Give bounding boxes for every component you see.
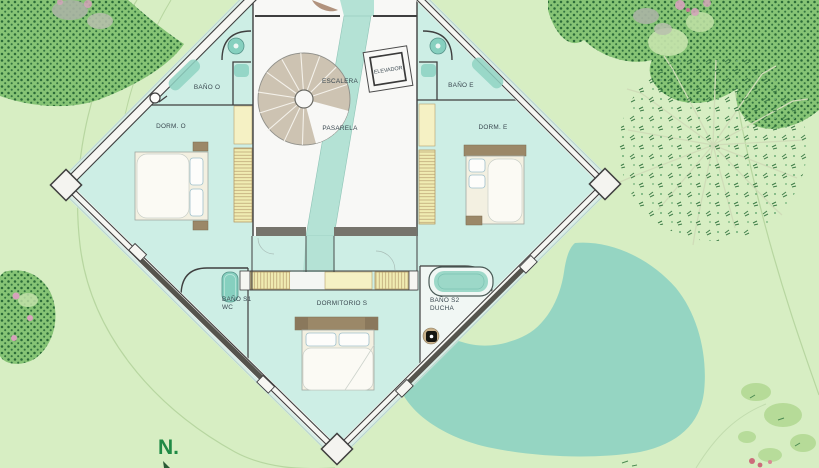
bathtub-s2 <box>429 267 493 296</box>
headboard <box>464 145 526 156</box>
label-bano-s1: BAÑO S1 <box>222 294 252 303</box>
pillow <box>306 333 336 346</box>
label-dorm-e: DORM. E <box>478 124 507 131</box>
label-bano-s2-sub: DUCHA <box>430 305 454 312</box>
door-pivot <box>150 93 160 103</box>
floorplan-page: ELEVADOR <box>0 0 819 468</box>
wall-bar <box>256 227 306 236</box>
blossom <box>84 0 92 8</box>
elevator: ELEVADOR <box>363 46 413 92</box>
bed-dorm-e <box>464 145 526 225</box>
shower-bano-e <box>430 38 446 54</box>
pillow <box>190 189 203 216</box>
blossom <box>691 8 699 16</box>
rock-cluster <box>87 13 113 29</box>
site-plan-svg: ELEVADOR <box>0 0 819 468</box>
rock-cluster <box>633 8 659 24</box>
label-bano-s2: BAÑO S2 <box>430 295 460 304</box>
nightstand <box>193 221 208 230</box>
label-escalera: ESCALERA <box>322 78 359 85</box>
nightstand <box>295 317 308 330</box>
label-bano-s1-sub: WC <box>222 304 233 311</box>
nightstand <box>365 317 378 330</box>
wall-bar <box>334 227 417 236</box>
blossom <box>749 458 755 464</box>
north-label: N. <box>158 436 179 459</box>
pillow <box>190 158 203 185</box>
blossom <box>11 335 17 341</box>
blossom <box>13 293 20 300</box>
pillow <box>339 333 369 346</box>
blossom <box>686 8 690 12</box>
rock-cluster <box>654 23 672 35</box>
shower-bano-o <box>228 38 244 54</box>
blossom <box>675 0 685 10</box>
bed-dorm-o <box>135 142 208 230</box>
label-bano-o: BAÑO O <box>194 82 220 91</box>
blossom <box>768 460 772 464</box>
nightstand <box>466 216 482 225</box>
wall-pier <box>409 271 418 290</box>
stair-center-column <box>295 90 313 108</box>
blossom <box>27 315 33 321</box>
label-dorm-o: DORM. O <box>156 123 186 130</box>
bed-dormitorio-s <box>295 317 378 390</box>
label-pasarela: PASARELA <box>322 125 358 132</box>
label-bano-e: BAÑO E <box>448 80 474 89</box>
toilet-s2 <box>423 328 439 344</box>
blossom <box>758 463 763 468</box>
pillow <box>469 175 485 188</box>
nightstand <box>193 142 208 151</box>
pillow <box>469 159 485 172</box>
wall-pier <box>240 271 250 290</box>
fixture-bano-e <box>421 64 436 77</box>
label-dormitorio-s: DORMITORIO S <box>317 300 367 307</box>
fixture-bano-o <box>234 64 249 77</box>
